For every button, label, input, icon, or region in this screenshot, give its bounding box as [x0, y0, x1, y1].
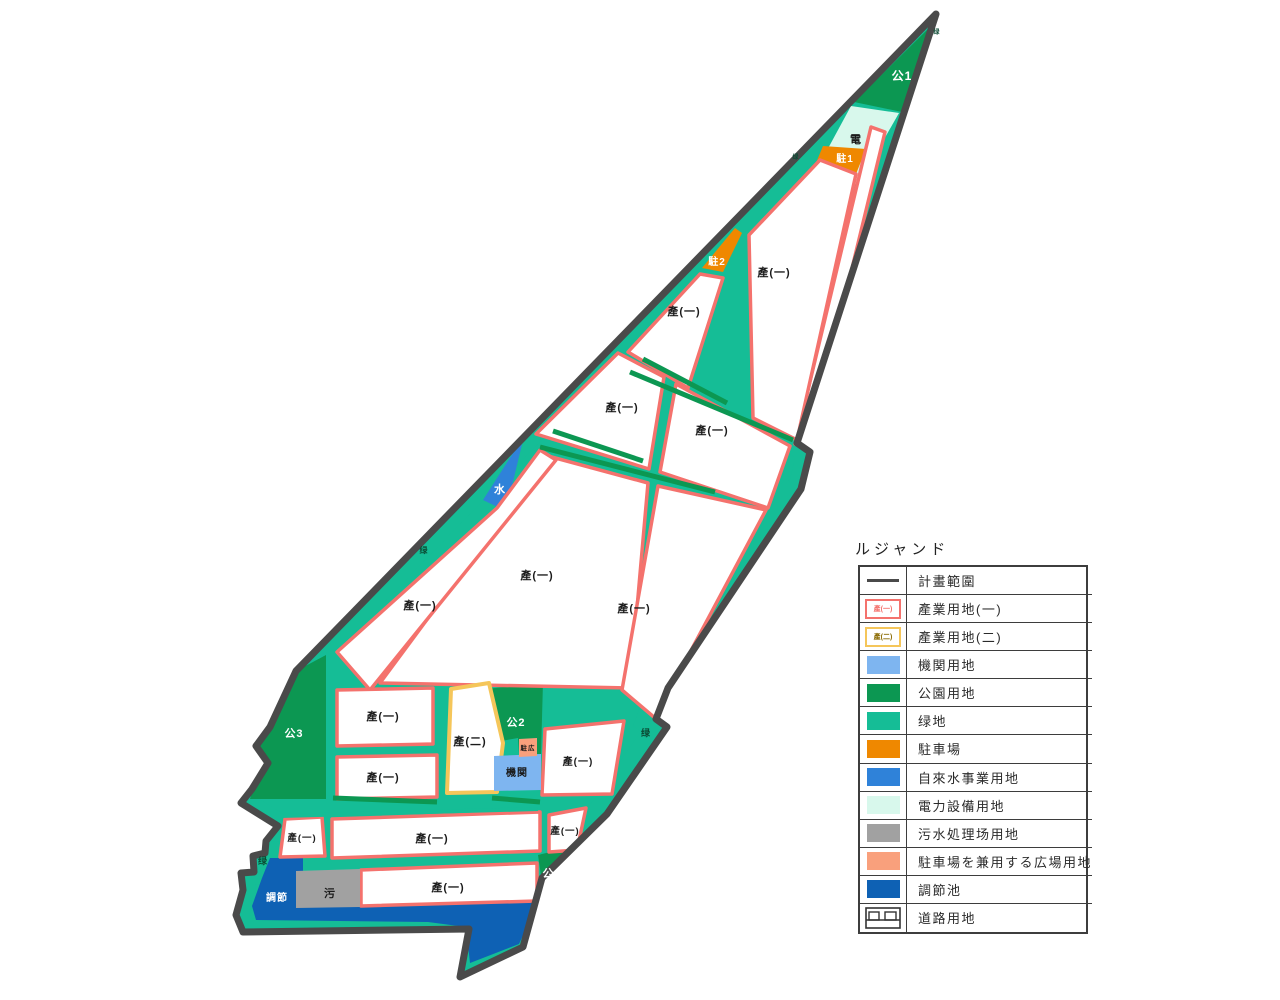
zone-label: 駐広 [521, 743, 536, 752]
legend-swatch-cell [860, 792, 907, 819]
legend-swatch-cell [860, 848, 907, 875]
industrial-parcels-1 [280, 127, 885, 906]
legend-label: 產業用地(二) [907, 623, 1092, 650]
sewage-swatch [867, 824, 900, 842]
legend-swatch-cell [860, 679, 907, 706]
pond-swatch [867, 880, 900, 898]
legend-row: 駐車場を兼用する広場用地 [860, 848, 1092, 876]
legend-label: 調節池 [907, 876, 1092, 903]
industrial-1-swatch: 產(一) [865, 599, 901, 619]
zone-label: 水 [494, 482, 506, 496]
legend-label: 計畫範圍 [907, 567, 1092, 594]
power-swatch [867, 796, 900, 814]
legend-swatch-cell [860, 651, 907, 678]
zone-label: 產(一) [365, 770, 399, 784]
zone-label: 產(一) [756, 265, 790, 279]
zone-label: 產(一) [402, 598, 436, 612]
legend-row: 绿地 [860, 707, 1092, 735]
legend-row: 駐車場 [860, 735, 1092, 763]
legend-title: ルジャンド [855, 538, 949, 559]
zone-label: 產(一) [365, 709, 399, 723]
legend-label: 機関用地 [907, 651, 1092, 678]
legend-swatch-cell [860, 876, 907, 903]
zone-label: 绿 [258, 855, 268, 866]
zone-label: 绿 [792, 153, 799, 161]
legend-swatch-cell [860, 735, 907, 762]
zone-label: 公4 [542, 867, 561, 880]
zone-label: 產(一) [562, 755, 594, 768]
zone-label: 绿 [933, 28, 940, 36]
zone-label: 電 [850, 133, 862, 146]
greenbelt-swatch [867, 712, 900, 730]
legend-swatch-cell [860, 567, 907, 594]
planning-map-screen: 公1 绿 電 駐1 绿 駐2 產(一) 產(一) 產(一) 產(一) 水 绿 產… [0, 0, 1280, 1000]
zone-label: 產(一) [549, 825, 579, 837]
legend-row: 調節池 [860, 876, 1092, 904]
legend-row: 機関用地 [860, 651, 1092, 679]
legend-label: 自來水事業用地 [907, 764, 1092, 791]
zone-label: 產(二) [452, 734, 486, 748]
zone-label: 公1 [892, 69, 913, 83]
zone-label: 產(一) [286, 832, 316, 844]
zone-label: 機関 [506, 766, 528, 779]
legend-row: 產(一) 產業用地(一) [860, 595, 1092, 623]
legend-row: 自來水事業用地 [860, 764, 1092, 792]
legend-swatch-cell: 產(二) [860, 623, 907, 650]
legend-swatch-cell [860, 764, 907, 791]
legend-swatch-cell [860, 820, 907, 847]
institution-swatch [867, 656, 900, 674]
legend-row: 產(二) 產業用地(二) [860, 623, 1092, 651]
zone-label: 公2 [506, 716, 525, 729]
zone-label: 產(一) [414, 831, 448, 845]
legend-label: 駐車場を兼用する広場用地 [907, 848, 1092, 875]
zone-label: 產(一) [604, 400, 638, 414]
zone-label: 產(一) [430, 880, 464, 894]
legend-label: 公園用地 [907, 679, 1092, 706]
park-swatch [867, 684, 900, 702]
zone-label: 產(一) [694, 423, 728, 437]
zone-label: 產(一) [666, 304, 700, 318]
zone-label: 調節 [266, 891, 288, 904]
legend-row: 公園用地 [860, 679, 1092, 707]
legend-row: 電力設備用地 [860, 792, 1092, 820]
legend-row: 道路用地 [860, 904, 1092, 932]
legend-table: 計畫範圍 產(一) 產業用地(一) 產(二) 產業用地(二) 機関用地 公園用地… [858, 565, 1088, 934]
legend-label: 污水処理场用地 [907, 820, 1092, 847]
legend-swatch-cell [860, 904, 907, 932]
legend-label: 產業用地(一) [907, 595, 1092, 622]
legend-label: 道路用地 [907, 904, 1092, 932]
road-swatch-icon [865, 907, 901, 929]
water-utility-swatch [867, 768, 900, 786]
zone-label: 绿 [641, 727, 651, 738]
zone-label: 绿 [420, 545, 429, 555]
zone-label: 駐2 [708, 255, 726, 268]
legend-row: 計畫範圍 [860, 567, 1092, 595]
plaza-swatch [867, 852, 900, 870]
zone-label: 產(一) [519, 568, 553, 582]
legend-swatch-cell: 產(一) [860, 595, 907, 622]
legend-label: 駐車場 [907, 735, 1092, 762]
boundary-line-swatch [867, 579, 899, 582]
legend-row: 污水処理场用地 [860, 820, 1092, 848]
industrial-2-swatch: 產(二) [865, 627, 901, 647]
legend-label: 绿地 [907, 707, 1092, 734]
legend-swatch-cell [860, 707, 907, 734]
zone-label: 駐1 [836, 152, 854, 165]
parking-swatch [867, 740, 900, 758]
zone-label: 污 [324, 886, 336, 900]
legend-label: 電力設備用地 [907, 792, 1092, 819]
zone-label: 產(一) [616, 601, 650, 615]
zone-label: 公3 [284, 727, 303, 740]
